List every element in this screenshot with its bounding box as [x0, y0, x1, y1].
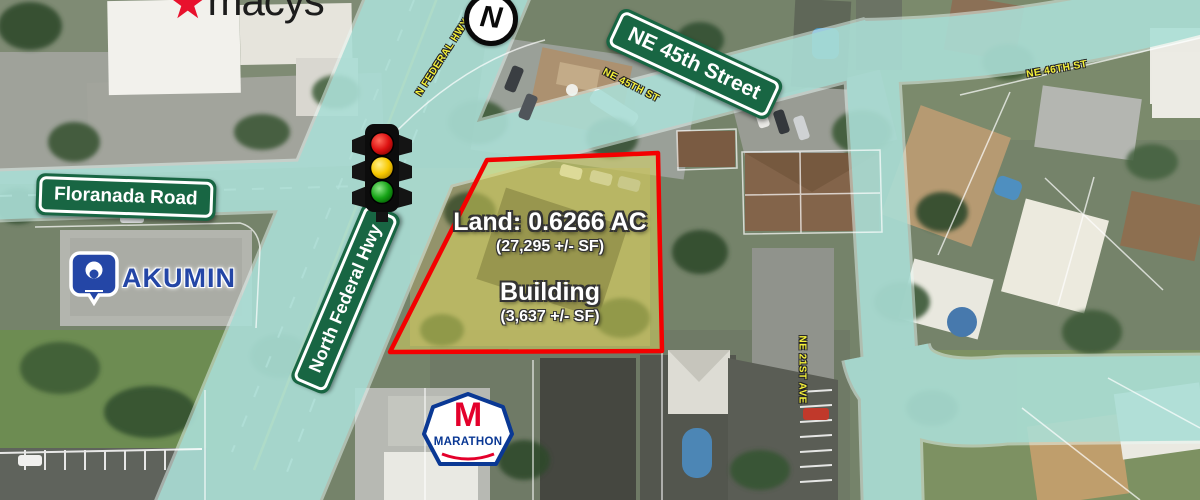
marathon-logo: M MARATHON [420, 392, 516, 472]
street-sign-floranada-label: Floranada Road [38, 176, 213, 218]
akumin-wordmark: AKUMIN [122, 263, 236, 294]
akumin-pin-icon [68, 250, 120, 306]
macys-star-icon: ★ [168, 0, 207, 26]
marathon-m-icon: M [420, 398, 516, 432]
aerial-map: ★ macys N NE 45th Street Floranada Road … [0, 0, 1200, 500]
marathon-wordmark: MARATHON [420, 436, 516, 448]
akumin-logo: AKUMIN [68, 250, 236, 306]
macys-wordmark: macys [207, 0, 323, 22]
traffic-light-icon [350, 122, 414, 229]
street-label-ne-21st-ave: NE 21ST AVE [797, 336, 808, 400]
macys-logo: ★ macys [168, 0, 324, 26]
compass-letter: N [479, 0, 504, 36]
street-sign-floranada: Floranada Road [35, 173, 216, 221]
